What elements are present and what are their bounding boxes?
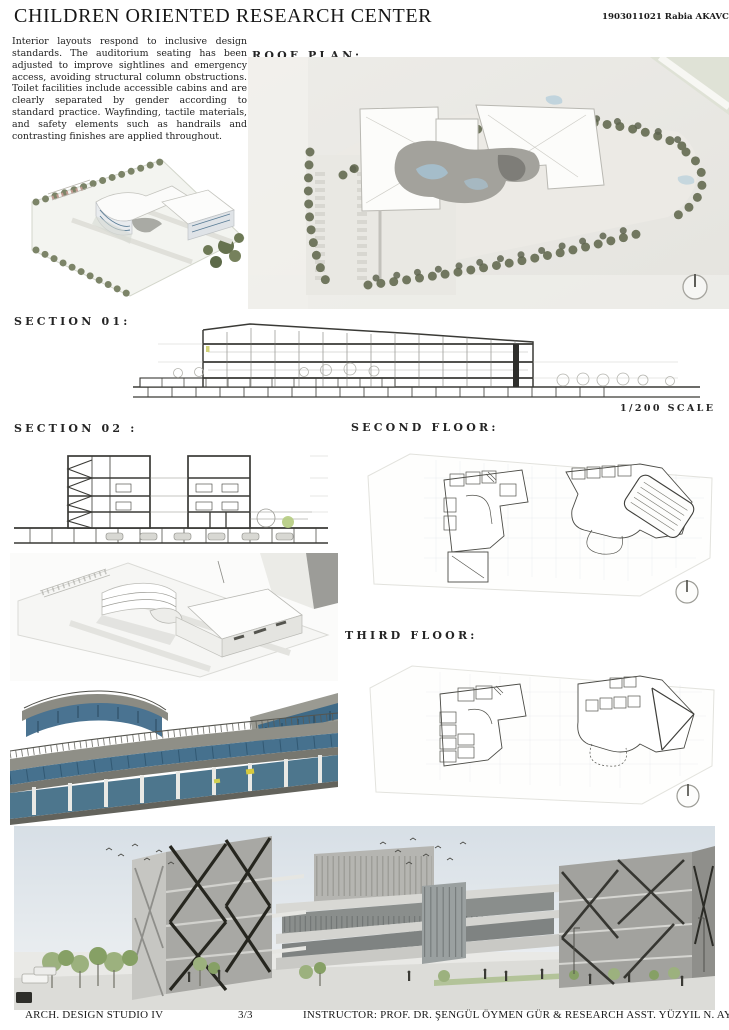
page-title: CHILDREN ORIENTED RESEARCH CENTER [14, 5, 432, 28]
intro-paragraph: Interior layouts respond to inclusive de… [12, 36, 247, 143]
north-arrow-icon [677, 784, 699, 807]
section-02-drawing [10, 444, 335, 556]
north-arrow-icon [676, 580, 698, 603]
main-perspective-render [14, 826, 715, 1010]
section-01-label: SECTION 01: [14, 315, 130, 328]
terrace-closeup-render [10, 681, 338, 826]
second-floor-label: SECOND FLOOR: [351, 421, 499, 434]
second-floor-plan [340, 438, 729, 628]
roof-plan-drawing [248, 57, 729, 309]
scale-label: 1/200 SCALE [620, 403, 715, 414]
third-floor-plan [340, 648, 729, 830]
student-id: 1903011021 Rabia AKAVCI [602, 12, 729, 22]
section-01-drawing [118, 320, 728, 404]
presentation-board: CHILDREN ORIENTED RESEARCH CENTER 190301… [0, 0, 729, 1030]
section-02-label: SECTION 02 : [14, 422, 137, 435]
aerial-axonometric-render [12, 150, 248, 300]
massing-model-render [10, 553, 338, 681]
footer-instructor: INSTRUCTOR: PROF. DR. ŞENGÜL ÖYMEN GÜR &… [303, 1009, 729, 1021]
footer-studio: ARCH. DESIGN STUDIO IV [25, 1009, 163, 1021]
footer-page-number: 3/3 [238, 1009, 253, 1021]
north-arrow-icon [683, 274, 707, 299]
third-floor-label: THIRD FLOOR: [345, 629, 478, 642]
